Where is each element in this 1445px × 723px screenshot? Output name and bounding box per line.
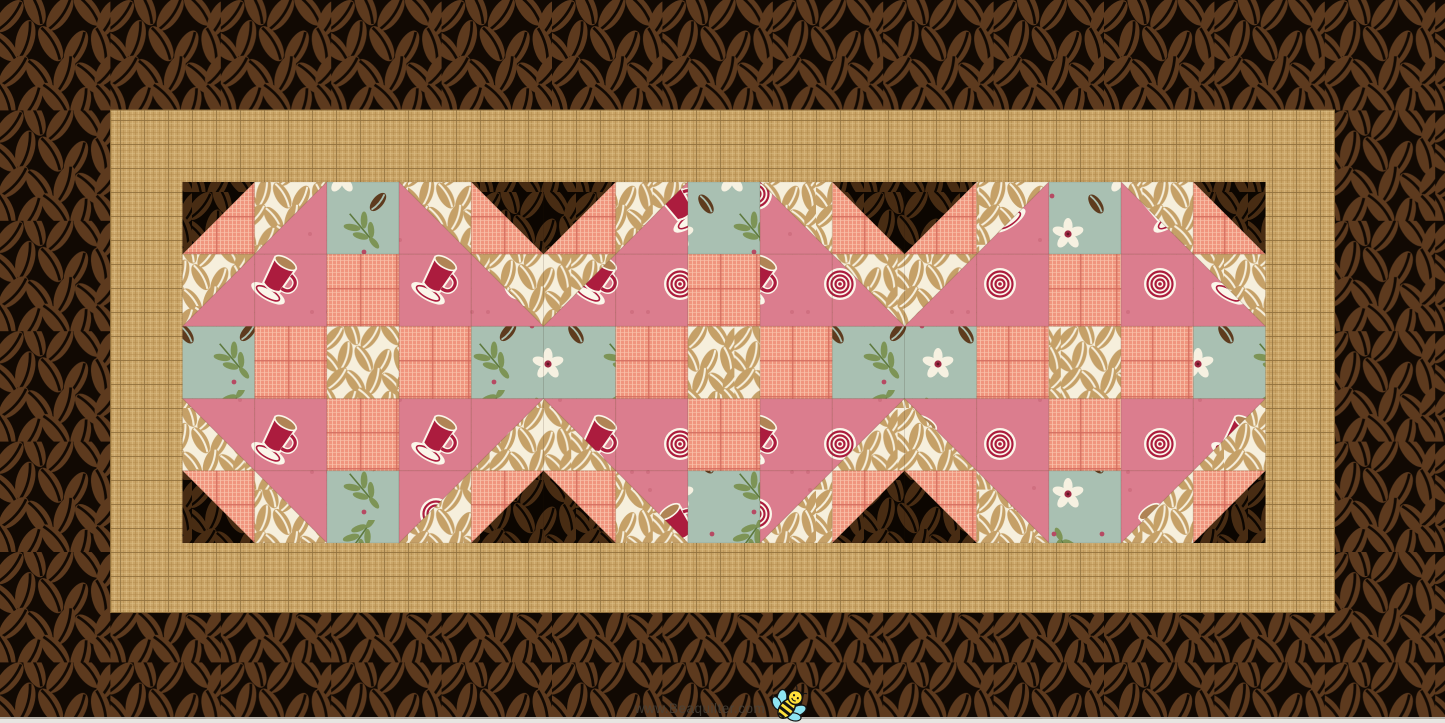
quilt-square-pink [760, 399, 832, 471]
quilt-square-pink [616, 254, 688, 326]
quilt-square-pink [977, 399, 1049, 471]
quilt-square-pink [1121, 254, 1193, 326]
quilt-square-peach [327, 254, 399, 326]
quilt-square-teal [471, 326, 543, 398]
quilt-square-peach [1049, 254, 1121, 326]
quilt-square-pink [399, 254, 471, 326]
quilt-square-teal [327, 182, 399, 254]
quilt-square-peach [616, 326, 688, 398]
quilt-square-peach [688, 254, 760, 326]
quilt-square-peach [977, 326, 1049, 398]
quilt-square-teal [832, 326, 904, 398]
watermark-text: www.Beaquilter.com [634, 701, 766, 716]
quilt-square-pink [616, 399, 688, 471]
quilt-square-teal [1193, 326, 1265, 398]
quilt-square-teal [183, 326, 255, 398]
bottom-edge-strip [0, 719, 1445, 723]
quilt-square-teal [544, 326, 616, 398]
quilt-square-peach [1049, 399, 1121, 471]
quilt-square-teal [1049, 471, 1121, 543]
quilt-square-cream [688, 326, 760, 398]
quilt-square-pink [760, 254, 832, 326]
quilt-square-peach [760, 326, 832, 398]
quilt-mockup-image: www.Beaquilter.com [0, 0, 1445, 723]
quilt-square-pink [255, 399, 327, 471]
quilt-square-pink [1121, 399, 1193, 471]
quilt-square-pink [255, 254, 327, 326]
quilt-square-teal [905, 326, 977, 398]
quilt-square-peach [255, 326, 327, 398]
quilt-square-peach [327, 399, 399, 471]
quilt-square-teal [327, 471, 399, 543]
quilt-square-peach [1121, 326, 1193, 398]
quilt-square-teal [1049, 182, 1121, 254]
quilt-square-peach [399, 326, 471, 398]
table-runner-quilt: www.Beaquilter.com [0, 0, 1445, 723]
quilt-square-teal [688, 471, 760, 543]
quilt-square-teal [688, 182, 760, 254]
quilt-square-cream [1049, 326, 1121, 398]
bottom-edge-line [0, 717, 1445, 719]
quilt-square-pink [977, 254, 1049, 326]
quilt-square-cream [327, 326, 399, 398]
quilt-square-pink [399, 399, 471, 471]
quilt-square-peach [688, 399, 760, 471]
